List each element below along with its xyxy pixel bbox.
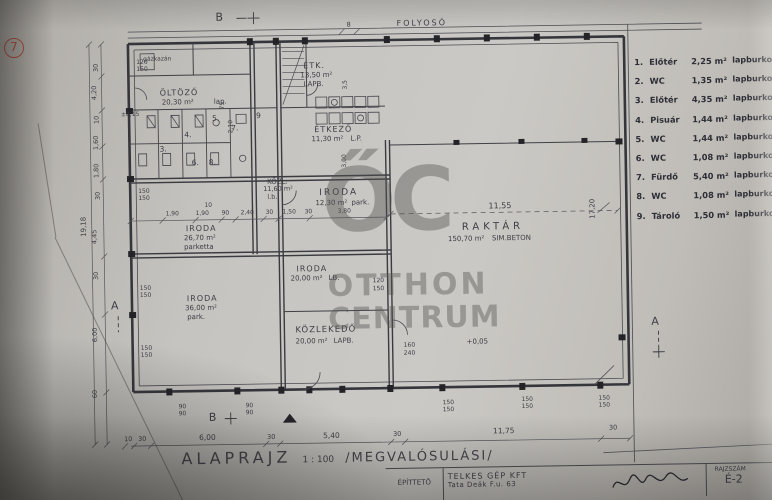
- dim-mid-1: 1,90: [196, 211, 209, 218]
- legend-num: 4.: [635, 114, 650, 133]
- win-bot-3b: 150: [443, 407, 455, 414]
- legend-name: Előtér: [649, 56, 691, 76]
- room-oltozo-area: 20,30 m²: [162, 98, 194, 107]
- room-raktar-area: 150,70 m²: [448, 235, 484, 244]
- legend-finish: lapburkolat: [733, 93, 772, 113]
- dim-mid-7: 3,80: [338, 209, 351, 216]
- door-240: 240: [404, 351, 416, 358]
- legend-name: WC: [651, 152, 693, 172]
- legend-num: 2.: [634, 76, 649, 95]
- level-mark-raktar: +0,05: [467, 337, 489, 345]
- legend-row-8: 8.WC1,08 m²lapburkolat: [636, 189, 768, 210]
- title-block: ÉPÍTTETŐ TELKES GÉP KFT Tata Deák F.u. 6…: [386, 462, 772, 500]
- legend-row-6: 6.WC1,08 m²lapburkolat: [636, 151, 768, 172]
- legend-area: 4,35 m²: [692, 94, 733, 114]
- room-kozl-finish: l.b.: [267, 194, 277, 202]
- dim-left-3: 1,60: [93, 136, 101, 151]
- legend-name: Előtér: [650, 95, 692, 115]
- legend-finish: lapburkolat: [734, 170, 772, 190]
- dim-300: 3,00: [342, 154, 349, 167]
- room-kozlekedo-name: KÖZLEKEDŐ: [295, 326, 356, 337]
- dim-bottom-3: 30: [267, 434, 275, 442]
- drawing-number-cell: RAJZSZÁM É-2: [706, 463, 772, 496]
- dim-left-9: 60: [92, 390, 100, 398]
- dim-mid-4: 30: [266, 210, 274, 217]
- room-iroda1-area: 12,30 m²: [315, 199, 347, 208]
- drawing-sheet: gázkazán ÖLTÖZŐ 20,30 m² lap. ÉTK. 13,50…: [0, 0, 772, 500]
- dim-bottom-1: 30: [138, 436, 146, 444]
- section-marker-b-top: B: [215, 12, 223, 25]
- legend-finish: lapburkolat: [733, 132, 772, 152]
- room-kozlekedo-finish: LAPB.: [334, 337, 354, 345]
- legend-area: 5,40 m²: [693, 171, 734, 191]
- room-etk-finish: LAPB.: [303, 80, 323, 88]
- win-bot-5b: 150: [599, 403, 611, 410]
- legend-row-1: 1.Előtér2,25 m²lapburkolat: [634, 55, 766, 76]
- legend-finish: lapburkolat: [732, 74, 772, 94]
- legend-row-3: 3.Előtér4,35 m²lapburkolat: [635, 93, 767, 114]
- dim-right-height: 17,20: [588, 199, 596, 219]
- room-number-9: 9: [256, 112, 261, 121]
- dim-mid-10: 10: [204, 203, 212, 210]
- legend-area: 1,44 m²: [692, 113, 733, 133]
- room-iroda1-finish: park.: [351, 198, 369, 206]
- scanned-floorplan-photo: 7: [0, 0, 772, 500]
- dim-left-8: 6,00: [92, 328, 100, 343]
- legend-area: 1,35 m²: [691, 75, 732, 95]
- room-iroda3-area: 20,00 m²: [291, 274, 323, 283]
- room-number-6: 6.: [192, 159, 199, 168]
- room-iroda2-finish: parketta: [184, 243, 214, 252]
- legend-finish: lapburkolat: [734, 189, 772, 209]
- dim-left-7: 30: [93, 272, 101, 280]
- legend-name: Tároló: [652, 210, 694, 230]
- room-raktar-finish: SIM.BETON: [492, 234, 531, 243]
- legend-name: Fürdő: [651, 171, 693, 191]
- dim-bottom-7: 30: [609, 424, 617, 432]
- room-number-8: 8.: [209, 159, 216, 168]
- dim-bottom-2: 6,00: [199, 434, 216, 443]
- dim-left-5: 30: [95, 192, 103, 200]
- section-marker-a-right: A: [651, 316, 659, 329]
- win-left-3b: 150: [140, 293, 152, 300]
- dim-bottom-4: 5,40: [323, 432, 340, 441]
- dim-left-6: 4,45: [91, 230, 99, 245]
- legend-num: 9.: [637, 210, 652, 229]
- dim-75: 75: [220, 102, 227, 110]
- dim-210: 2,10: [228, 120, 235, 133]
- dim-left-0: 30: [93, 64, 101, 72]
- room-iroda2-area: 26,70 m²: [184, 234, 216, 243]
- client-address: Tata Deák F.u. 63: [448, 480, 528, 489]
- legend-name: WC: [649, 75, 691, 95]
- dim-raktar-width: 11,55: [488, 201, 511, 211]
- legend-name: Pisuár: [650, 114, 692, 134]
- room-etkezo-area: 11,30 m²: [311, 135, 343, 144]
- legend-area: 1,50 m²: [694, 209, 735, 229]
- legend-row-7: 7.Fürdő5,40 m²lapburkolat: [636, 170, 768, 191]
- dim-left-total: 19,18: [80, 217, 88, 237]
- room-kozlekedo-area: 20,00 m²: [296, 337, 328, 346]
- legend-num: 3.: [635, 95, 650, 114]
- legend-row-2: 2.WC1,35 m²lapburkolat: [634, 74, 766, 95]
- room-etk-name: ÉTK.: [303, 61, 325, 71]
- dim-bottom-0: 10: [124, 436, 132, 444]
- legend-finish: lapburkolat: [734, 151, 772, 171]
- title-text: ALAPRAJZ: [181, 448, 291, 469]
- dim-top-8: 8: [347, 22, 351, 30]
- win-left-1b: 150: [136, 67, 148, 74]
- section-marker-b-bottom: B: [209, 412, 217, 425]
- legend-area: 1,08 m²: [693, 152, 734, 172]
- client-info: TELKES GÉP KFT Tata Deák F.u. 63: [448, 471, 528, 489]
- room-iroda3-finish: LB.: [329, 274, 340, 282]
- section-marker-a-left: A: [111, 300, 119, 313]
- win-bot-2b: 90: [246, 410, 254, 417]
- room-legend: 1.Előtér2,25 m²lapburkolat 2.WC1,35 m²la…: [634, 55, 769, 230]
- client-label: ÉPÍTTETŐ: [386, 468, 444, 500]
- legend-finish: lapburkolat: [735, 208, 772, 228]
- room-number-3: 3.: [159, 145, 166, 154]
- sheet-number-badge: 7: [4, 38, 24, 58]
- legend-area: 1,44 m²: [692, 132, 733, 152]
- legend-num: 5.: [635, 134, 650, 153]
- legend-row-9: 9.Tároló1,50 m²lapburkolat: [637, 209, 769, 230]
- title-scale: 1 : 100: [302, 455, 334, 465]
- win-bot-1b: 90: [179, 411, 187, 418]
- room-etkezo-name: ÉTKEZŐ: [314, 125, 352, 135]
- room-iroda4-name: IRODA: [187, 294, 218, 304]
- signature: [608, 466, 698, 495]
- legend-name: WC: [651, 191, 693, 211]
- dim-mid-6: 30: [305, 209, 313, 216]
- dim-left-4: 1,80: [93, 164, 101, 179]
- legend-area: 1,08 m²: [693, 190, 734, 210]
- legend-num: 6.: [636, 153, 651, 172]
- dim-bottom-5: 30: [393, 431, 401, 439]
- legend-finish: lapburkolat: [732, 55, 772, 75]
- room-iroda1-name: IRODA: [319, 187, 358, 198]
- room-number-5: 5.: [212, 115, 219, 124]
- room-iroda4-finish: park.: [187, 313, 205, 321]
- win-left-4b: 150: [141, 353, 153, 360]
- room-etkezo-finish: L.P.: [350, 134, 362, 142]
- room-oltozo-name: ÖLTÖZŐ: [160, 88, 199, 98]
- door-160: 160: [404, 343, 416, 350]
- level-mark-entry: ±0,15: [121, 112, 139, 119]
- corridor-label: FOLYOSÓ: [397, 18, 448, 28]
- legend-area: 2,25 m²: [691, 56, 732, 76]
- dim-mid-3: 2,40: [241, 210, 254, 217]
- legend-row-4: 4.Pisuár1,44 m²lapburkolat: [635, 113, 767, 134]
- room-number-4: 4.: [184, 131, 191, 140]
- legend-finish: lapburkolat: [733, 112, 772, 132]
- dim-bottom-6: 11,75: [493, 427, 515, 436]
- win-150: 150: [373, 286, 385, 293]
- room-etk-area: 13,50 m²: [300, 71, 332, 80]
- dim-left-2: 10: [94, 116, 102, 124]
- win-bot-4b: 150: [522, 404, 534, 411]
- dim-mid-2: 90: [222, 211, 230, 218]
- dim-mid-5: 1,50: [283, 209, 296, 216]
- win-120: 120: [373, 278, 385, 285]
- drawing-number: É-2: [707, 472, 772, 486]
- room-iroda3-name: IRODA: [296, 264, 327, 274]
- dim-mid-0: 1,90: [166, 211, 179, 218]
- legend-row-5: 5.WC1,44 m²lapburkolat: [635, 132, 767, 153]
- legend-num: 7.: [636, 172, 651, 191]
- legend-name: WC: [650, 133, 692, 153]
- legend-num: 8.: [636, 191, 651, 210]
- room-iroda2-name: IRODA: [186, 224, 217, 234]
- title-variant: /MEGVALÓSULÁSI/: [345, 448, 494, 465]
- room-iroda4-area: 36,00 m²: [185, 304, 217, 313]
- dim-left-1: 4,20: [91, 86, 99, 101]
- room-raktar-name: RAKTÁR: [462, 221, 524, 233]
- win-left-2b: 150: [138, 196, 150, 203]
- dim-35: 3,5: [343, 80, 350, 90]
- legend-num: 1.: [634, 57, 649, 76]
